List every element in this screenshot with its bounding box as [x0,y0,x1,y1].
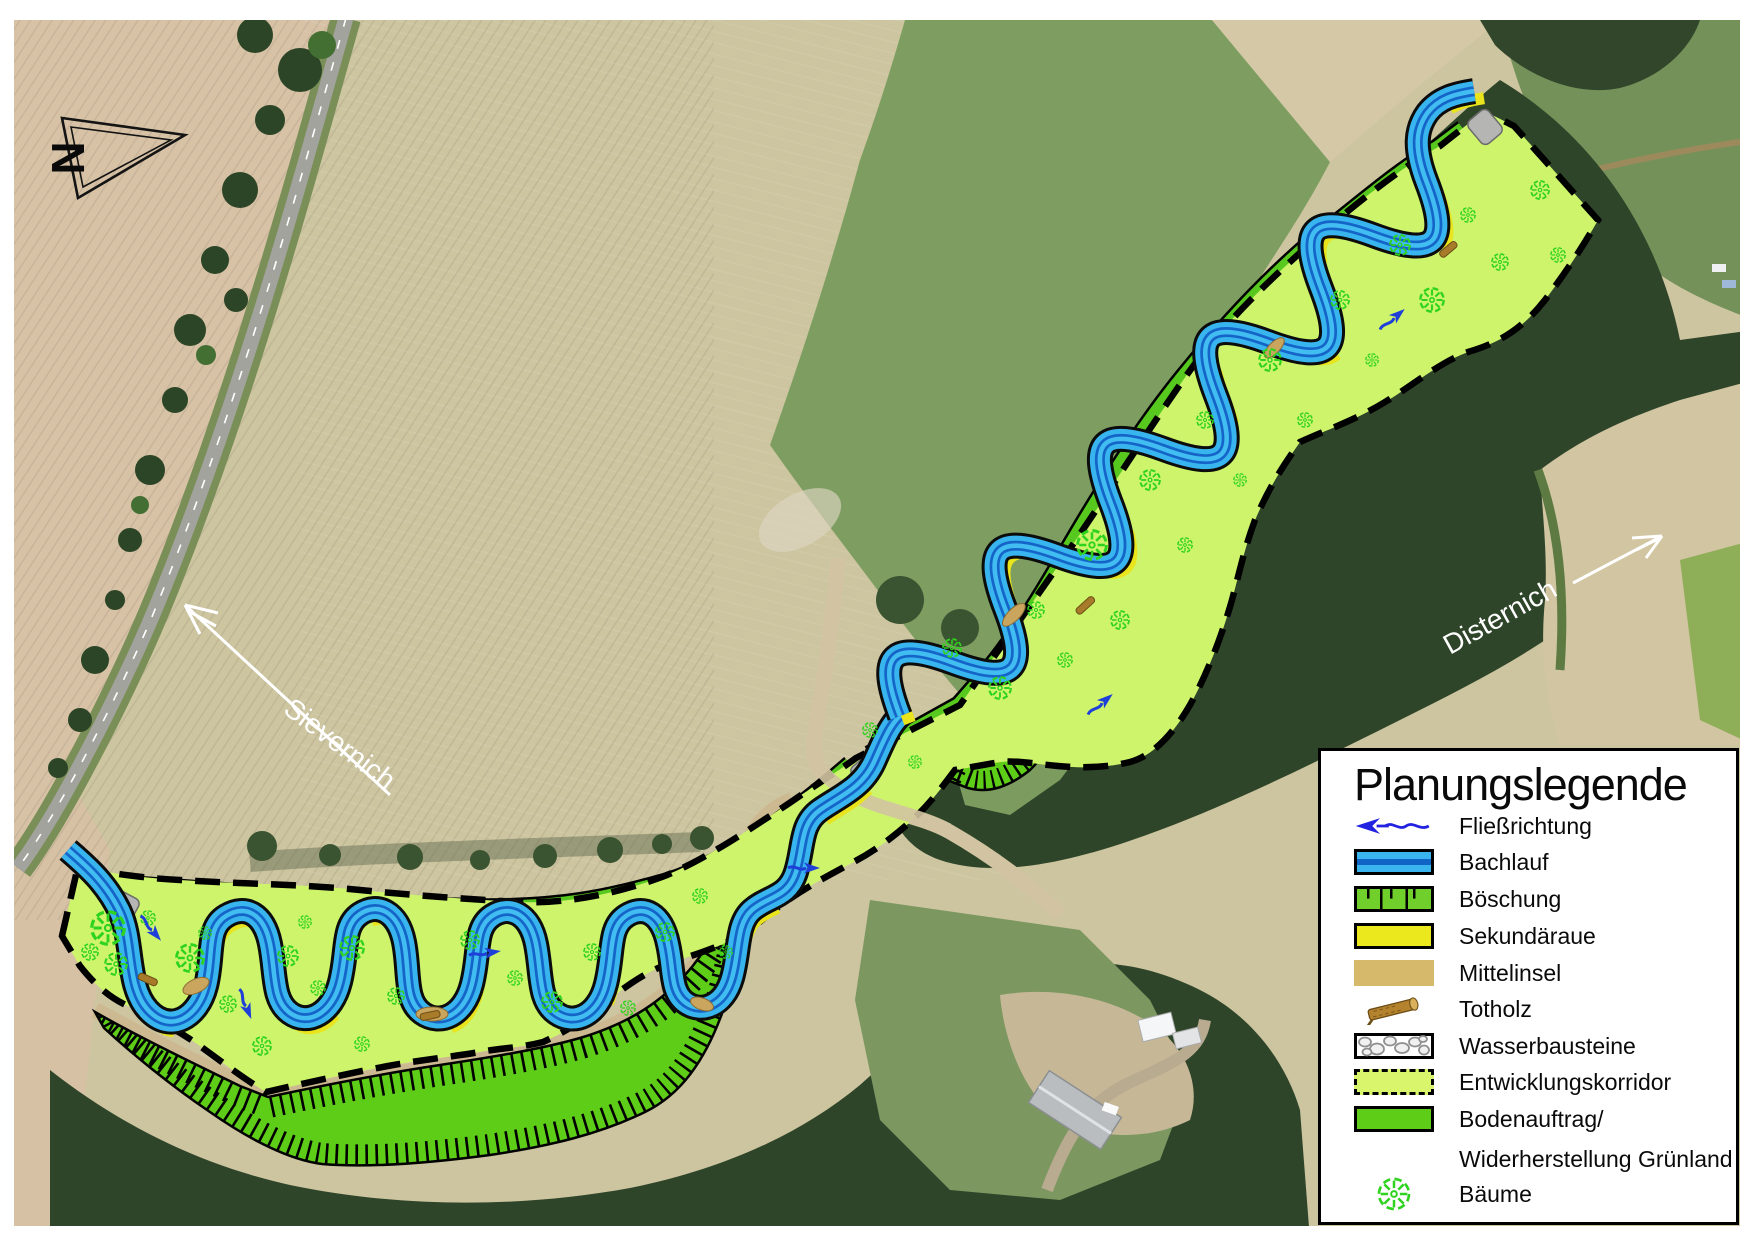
legend-item-boeschung: Böschung [1354,884,1561,914]
legend-label: Fließrichtung [1459,813,1592,840]
legend-label: Sekundäraue [1459,923,1596,950]
legend-item-fliessrichtung: Fließrichtung [1354,811,1592,841]
legend-label: Bäume [1459,1181,1532,1208]
car-2 [1722,280,1736,288]
legend-label: Böschung [1459,886,1561,913]
legend-label: Mittelinsel [1459,960,1561,987]
legend-item-baeume: Bäume [1354,1179,1532,1209]
legend-label-continuation: Widerherstellung Grünland [1459,1146,1733,1173]
legend-label: Bachlauf [1459,849,1549,876]
embankment-swatch [1354,886,1434,912]
plan-page: N Sievernich Disternich Planungslegende … [0,0,1754,1240]
legend-label: Bodenauftrag/ [1459,1106,1604,1133]
car [1712,264,1726,272]
legend-item-wasserbausteine: Wasserbausteine [1354,1031,1636,1061]
deadwood-icon [1354,996,1434,1022]
legend-item-entwicklungskorridor: Entwicklungskorridor [1354,1067,1671,1097]
north-label: N [42,141,94,174]
flow-direction-icon [1354,813,1434,839]
legend-item-totholz: Totholz [1354,994,1532,1024]
legend-item-sekundaeraue: Sekundäraue [1354,921,1596,951]
secondary-floodplain-swatch [1354,923,1434,949]
legend-item-bodenauftrag: Bodenauftrag/ [1354,1104,1604,1134]
stones-swatch [1354,1033,1434,1059]
soil-green-swatch [1354,1106,1434,1132]
island-swatch [1354,960,1434,986]
legend-label: Entwicklungskorridor [1459,1069,1671,1096]
tree-icon [1354,1181,1434,1207]
legend-item-mittelinsel: Mittelinsel [1354,958,1561,988]
legend-panel: Planungslegende Fließrichtung Bachlauf B… [1318,748,1739,1225]
legend-title: Planungslegende [1354,759,1687,811]
legend-label: Totholz [1459,996,1532,1023]
legend-item-bachlauf: Bachlauf [1354,847,1549,877]
stream-swatch [1354,849,1434,875]
corridor-swatch [1354,1069,1434,1095]
legend-label: Wasserbausteine [1459,1033,1636,1060]
